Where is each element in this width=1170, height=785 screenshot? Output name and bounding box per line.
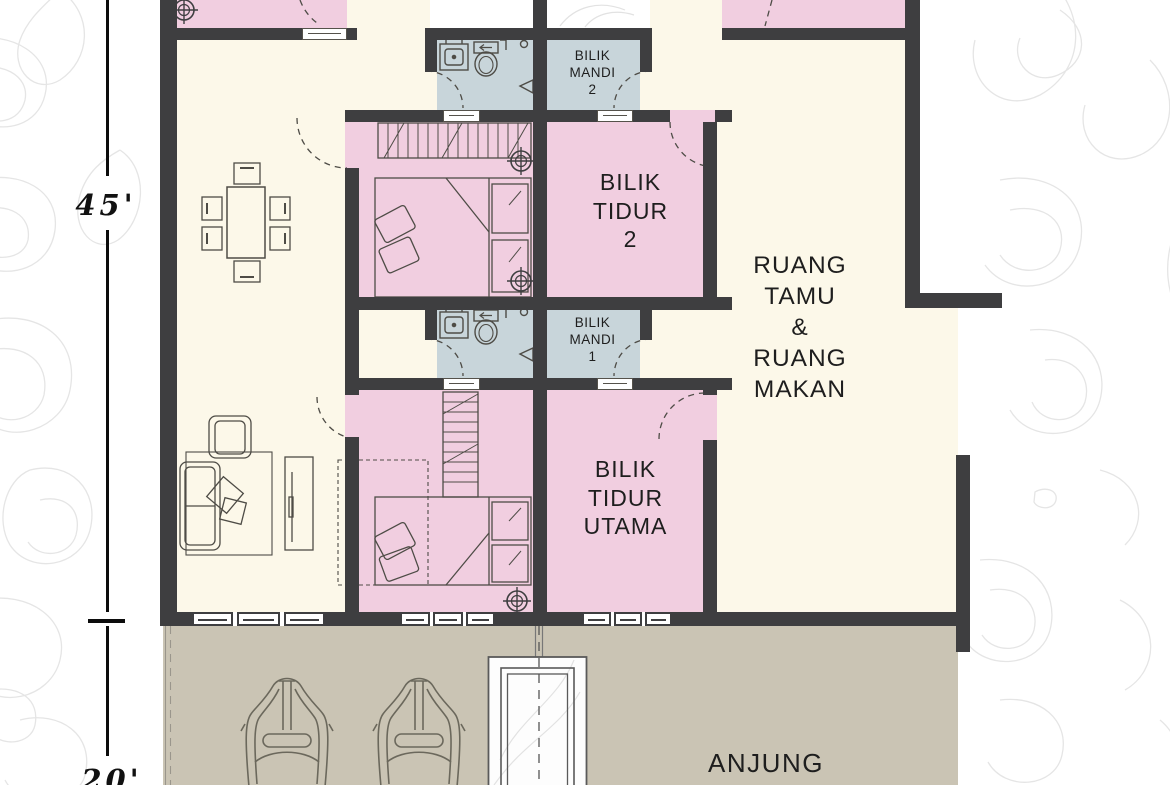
wall-front (160, 612, 192, 626)
wall-utama-right (703, 440, 717, 612)
room-label-line: UTAMA (548, 512, 703, 541)
wall-bedrooms-left (345, 168, 359, 395)
wall-bathroom2-side (425, 28, 437, 72)
room-label-porch: ANJUNG (686, 748, 846, 778)
dimension-line (106, 230, 109, 612)
room-label-line: & (715, 312, 885, 343)
room-label-line: TAMU (715, 281, 885, 312)
room-label-master-bedroom: BILIK TIDUR UTAMA (548, 455, 703, 541)
entrance-steps (489, 626, 587, 785)
dimension-label-porch: 20' (70, 763, 154, 785)
wall-right-lower (956, 455, 970, 652)
dimension-line (106, 0, 109, 176)
dimension-line (106, 626, 109, 756)
ceiling-fan-icon (503, 587, 531, 615)
room-label-line: BILIK (545, 314, 640, 331)
floor-plan-canvas: BILIK MANDI 2 BILIK TIDUR 2 BILIK MANDI … (0, 0, 1170, 785)
window (466, 612, 495, 626)
room-label-living-dining: RUANG TAMU & RUANG MAKAN (715, 250, 885, 405)
wall-front (495, 612, 582, 626)
wall-bedrooms-left (345, 437, 359, 612)
double-bed-icon (374, 497, 531, 585)
window (237, 612, 280, 626)
car-icon (241, 679, 333, 785)
wall-bathroom1-bottom (345, 378, 732, 390)
room-label-line: RUANG (715, 343, 885, 374)
window (400, 612, 430, 626)
door-sill (443, 110, 480, 122)
room-label-bathroom-1: BILIK MANDI 1 (545, 314, 640, 365)
room-label-line: 1 (545, 348, 640, 365)
room-label-line: MAKAN (715, 374, 885, 405)
cushion-icon (207, 477, 247, 525)
wall-bedrooms-left (345, 110, 359, 118)
door-sill (443, 378, 480, 390)
wall-top-row (722, 28, 920, 40)
window (192, 612, 233, 626)
door-sill (597, 378, 633, 390)
porch-edge-line (166, 626, 171, 785)
car-icon (373, 679, 465, 785)
room-label-line: 2 (545, 81, 640, 98)
room-label-line: BILIK (545, 47, 640, 64)
window (614, 612, 642, 626)
window (645, 612, 672, 626)
wall-front (325, 612, 400, 626)
double-bed-icon (374, 178, 531, 297)
room-label-line: TIDUR (548, 484, 703, 513)
window (433, 612, 463, 626)
wall-top-row (425, 28, 652, 40)
room-label-line: BILIK (548, 455, 703, 484)
dimension-tick (88, 619, 125, 623)
room-label-line: 2 (553, 225, 708, 254)
window (582, 612, 611, 626)
room-label-line: MANDI (545, 331, 640, 348)
tv-console-icon (285, 457, 313, 550)
room-label-bedroom-2: BILIK TIDUR 2 (553, 168, 708, 254)
dining-table-icon (202, 163, 290, 282)
window (284, 612, 325, 626)
bedroom-3-furniture (374, 123, 535, 297)
wall-bathroom1-side (640, 297, 652, 340)
wall-mid-row (345, 297, 732, 310)
dimension-label-depth: 45' (64, 188, 148, 222)
wall-right-upper (905, 0, 920, 300)
room-label-bathroom-2: BILIK MANDI 2 (545, 47, 640, 98)
door-sill (597, 110, 633, 122)
wall-front (672, 612, 958, 626)
wall-bathroom2-bottom-cap (715, 110, 732, 122)
wardrobe-icon (443, 392, 478, 497)
room-label-line: TIDUR (553, 197, 708, 226)
wall-bathroom1-side (425, 297, 437, 340)
room-label-line: BILIK (553, 168, 708, 197)
door-sill (302, 28, 347, 40)
master-bedroom-furniture (338, 392, 531, 615)
room-label-line: RUANG (715, 250, 885, 281)
wall-right-jut (905, 293, 1002, 308)
wall-left (160, 0, 177, 626)
room-label-line: MANDI (545, 64, 640, 81)
living-set (180, 416, 313, 555)
wall-bathroom2-side (640, 28, 652, 72)
